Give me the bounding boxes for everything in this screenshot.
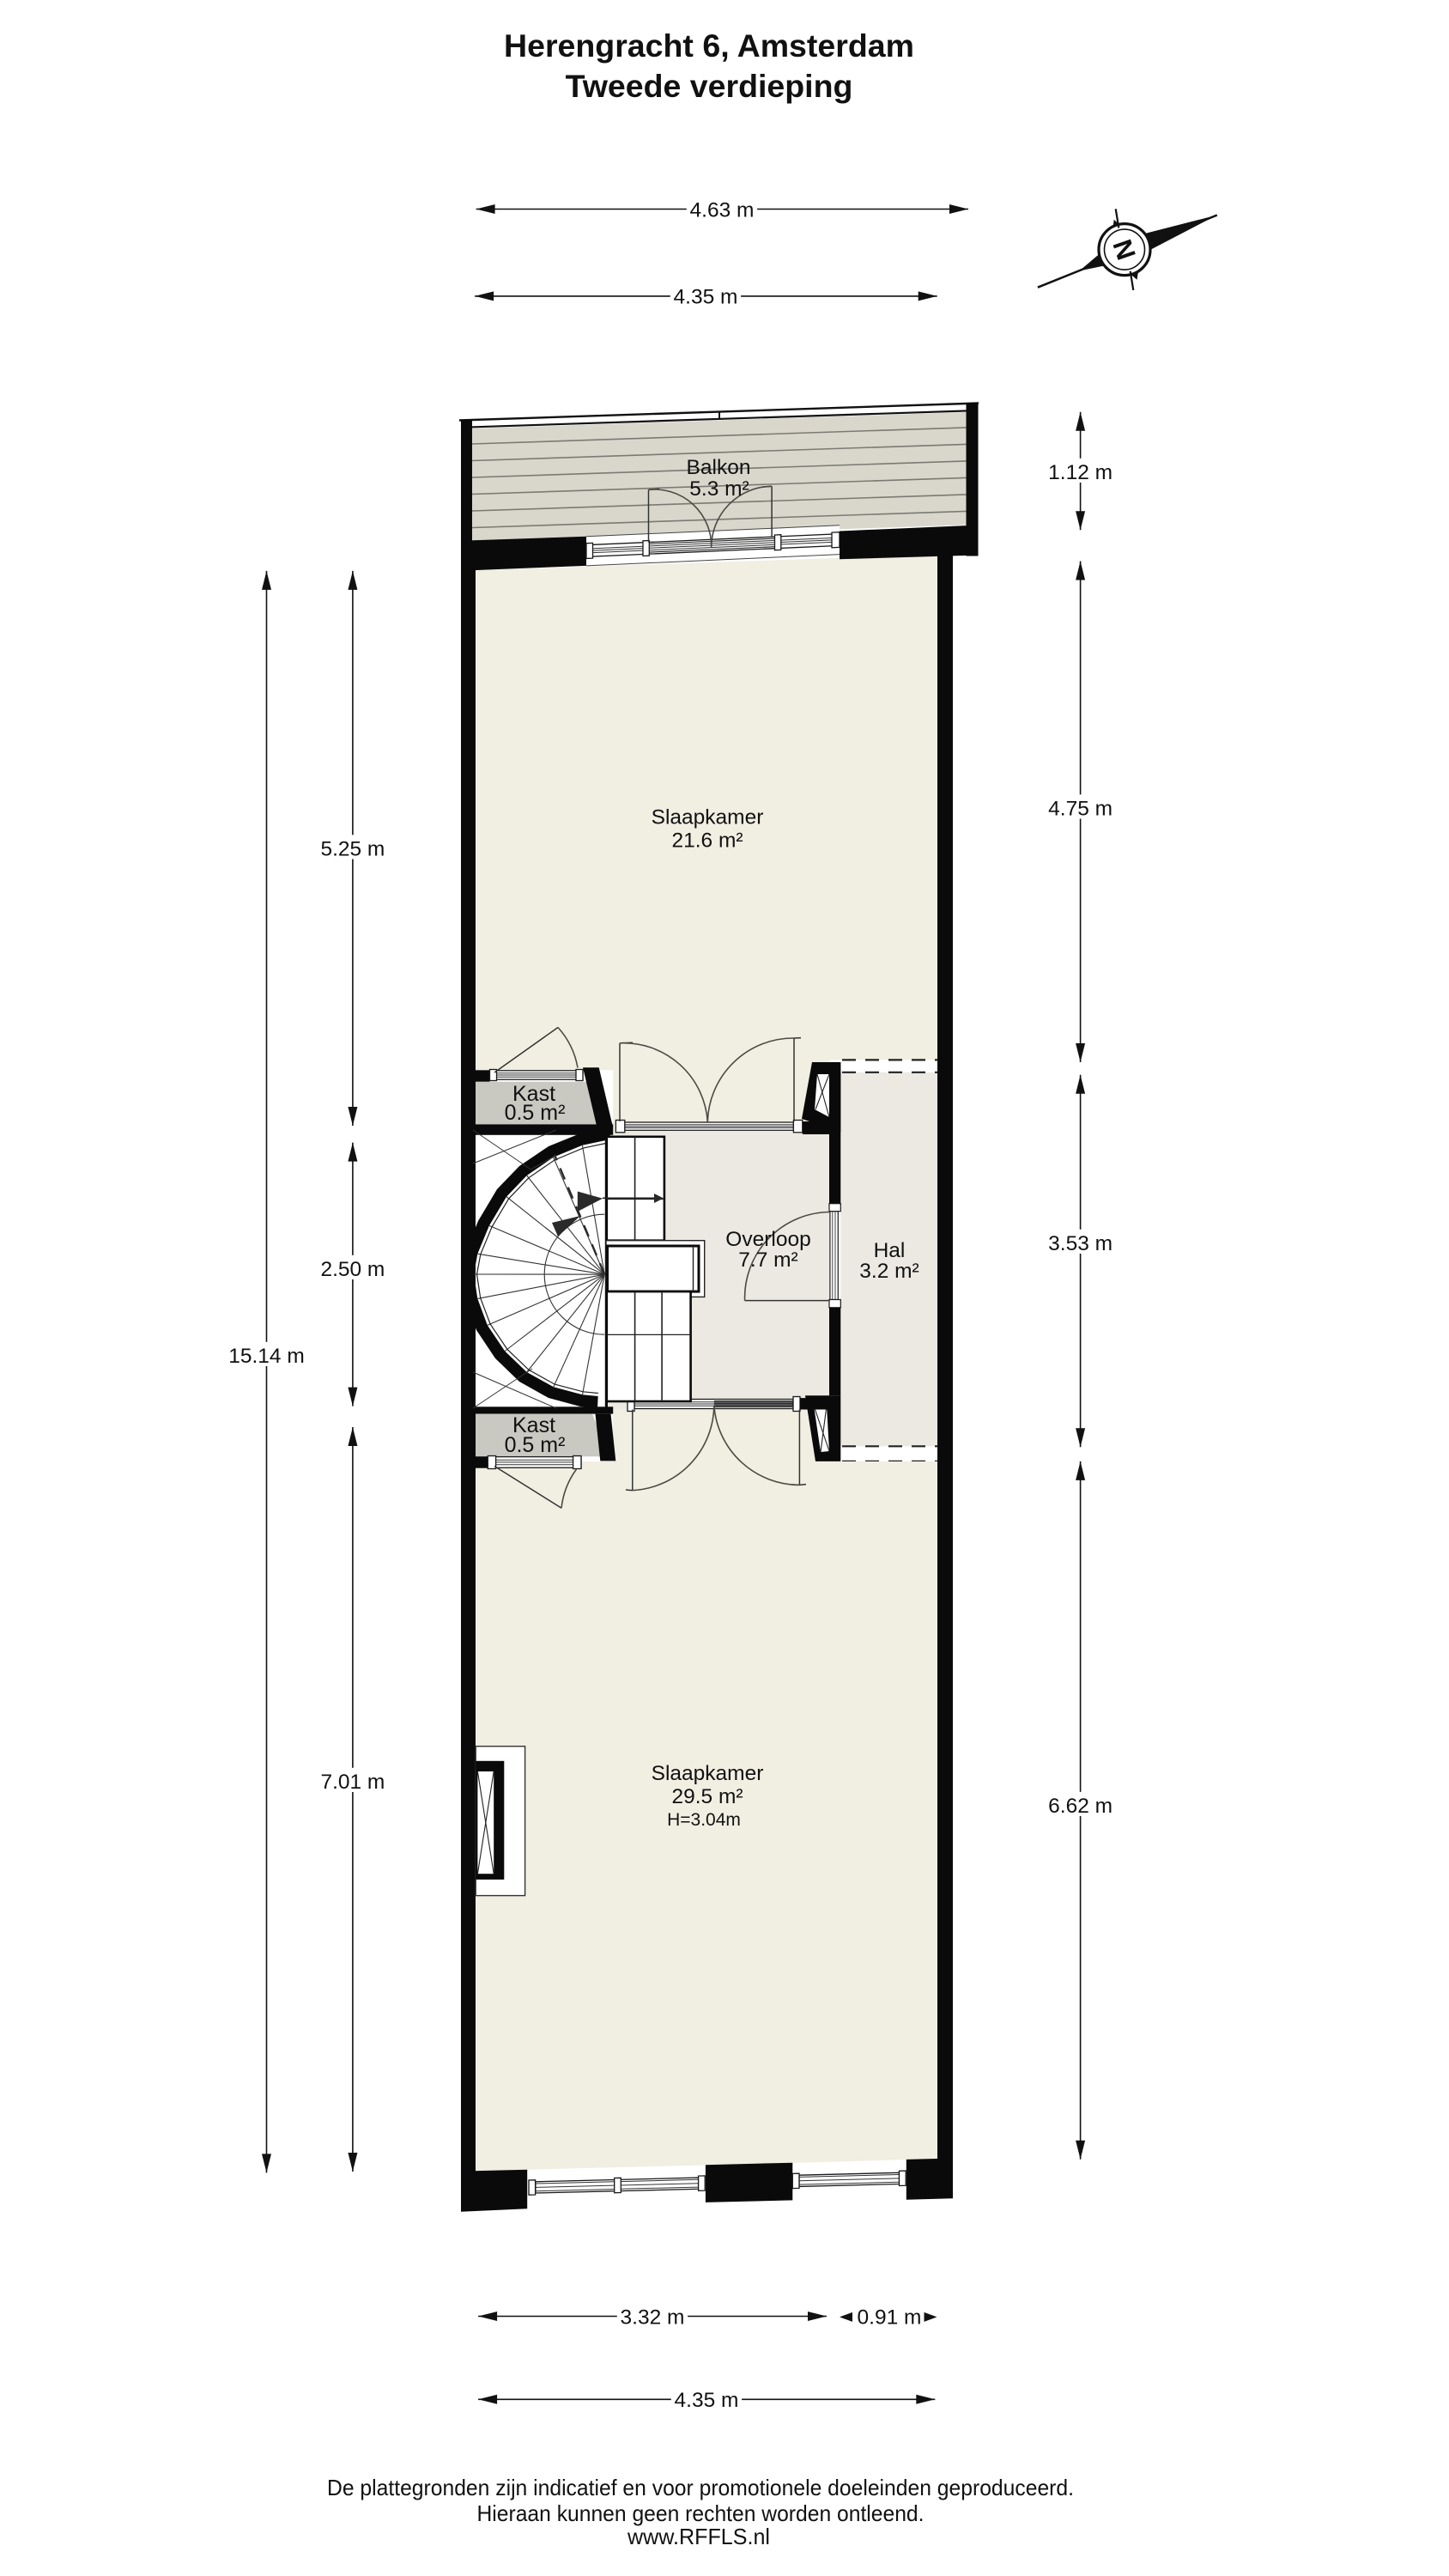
svg-text:2.50 m: 2.50 m xyxy=(320,1258,385,1281)
svg-text:Herengracht 6, Amsterdam: Herengracht 6, Amsterdam xyxy=(504,27,914,64)
svg-text:0.5 m²: 0.5 m² xyxy=(505,1101,566,1125)
svg-text:29.5 m²: 29.5 m² xyxy=(671,1785,743,1808)
svg-text:3.53 m: 3.53 m xyxy=(1048,1232,1113,1255)
svg-text:5.3 m²: 5.3 m² xyxy=(689,477,749,501)
svg-text:4.35 m: 4.35 m xyxy=(675,2389,739,2412)
svg-text:De plattegronden zijn indicati: De plattegronden zijn indicatief en voor… xyxy=(327,2475,1074,2500)
svg-text:Slaapkamer: Slaapkamer xyxy=(652,806,764,829)
svg-text:7.01 m: 7.01 m xyxy=(320,1771,385,1794)
svg-text:4.63 m: 4.63 m xyxy=(690,198,755,222)
svg-text:6.62 m: 6.62 m xyxy=(1048,1795,1113,1818)
svg-text:Balkon: Balkon xyxy=(687,456,751,479)
svg-text:21.6 m²: 21.6 m² xyxy=(671,829,743,853)
svg-text:4.35 m: 4.35 m xyxy=(674,286,738,309)
svg-text:Slaapkamer: Slaapkamer xyxy=(652,1762,764,1785)
svg-text:3.2 m²: 3.2 m² xyxy=(859,1260,919,1283)
svg-text:0.91 m: 0.91 m xyxy=(858,2306,922,2330)
svg-text:Overloop: Overloop xyxy=(725,1228,810,1251)
svg-text:7.7 m²: 7.7 m² xyxy=(738,1249,797,1272)
svg-text:Tweede verdieping: Tweede verdieping xyxy=(566,68,853,104)
svg-text:Hal: Hal xyxy=(874,1239,906,1262)
svg-text:3.32 m: 3.32 m xyxy=(621,2306,685,2329)
svg-text:H=3.04m: H=3.04m xyxy=(667,1810,741,1830)
svg-text:5.25 m: 5.25 m xyxy=(320,837,385,860)
svg-text:0.5 m²: 0.5 m² xyxy=(505,1433,566,1457)
svg-text:Hieraan kunnen geen rechten wo: Hieraan kunnen geen rechten worden ontle… xyxy=(477,2500,925,2526)
svg-text:www.RFFLS.nl: www.RFFLS.nl xyxy=(627,2524,770,2549)
svg-text:15.14 m: 15.14 m xyxy=(228,1345,305,1368)
svg-text:4.75 m: 4.75 m xyxy=(1048,797,1113,820)
svg-text:1.12 m: 1.12 m xyxy=(1048,461,1113,484)
